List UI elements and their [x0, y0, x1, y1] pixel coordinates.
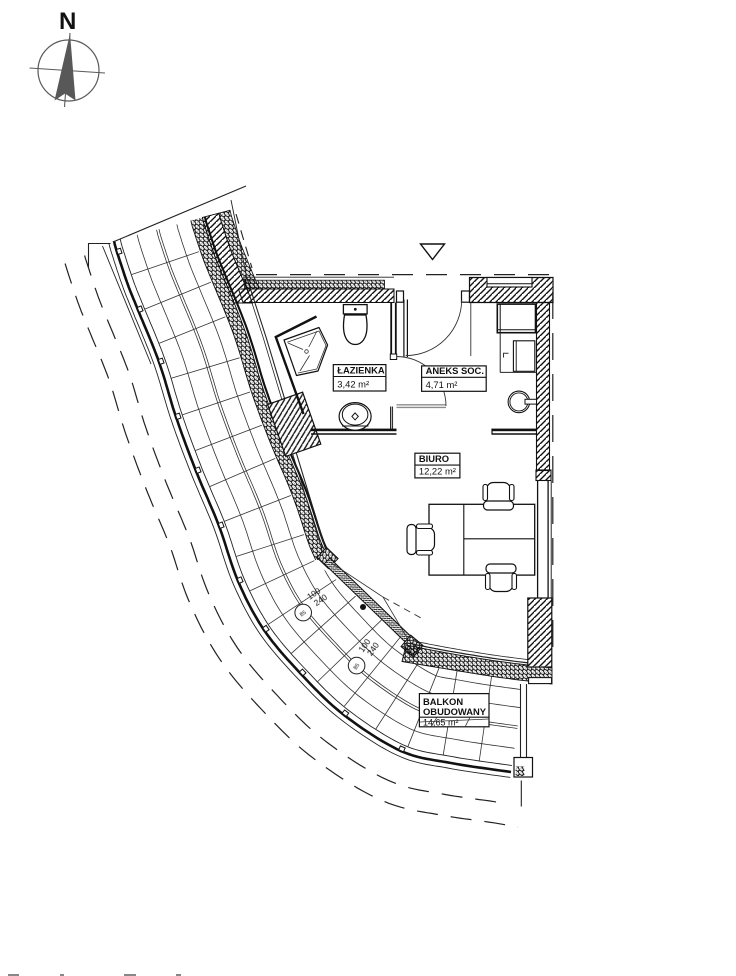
svg-text:N: N — [59, 8, 76, 35]
svg-text:ŁAZIENKA: ŁAZIENKA — [337, 364, 385, 375]
svg-text:14,65 m²: 14,65 m² — [423, 717, 459, 727]
svg-text:ANEKS SOC.: ANEKS SOC. — [426, 365, 484, 376]
svg-text:4,71 m²: 4,71 m² — [426, 379, 458, 390]
svg-text:3,42 m²: 3,42 m² — [337, 379, 369, 390]
svg-text:OBUDOWANY: OBUDOWANY — [423, 706, 487, 717]
svg-text:BIURO: BIURO — [419, 453, 449, 464]
svg-text:12,22 m²: 12,22 m² — [419, 465, 456, 476]
